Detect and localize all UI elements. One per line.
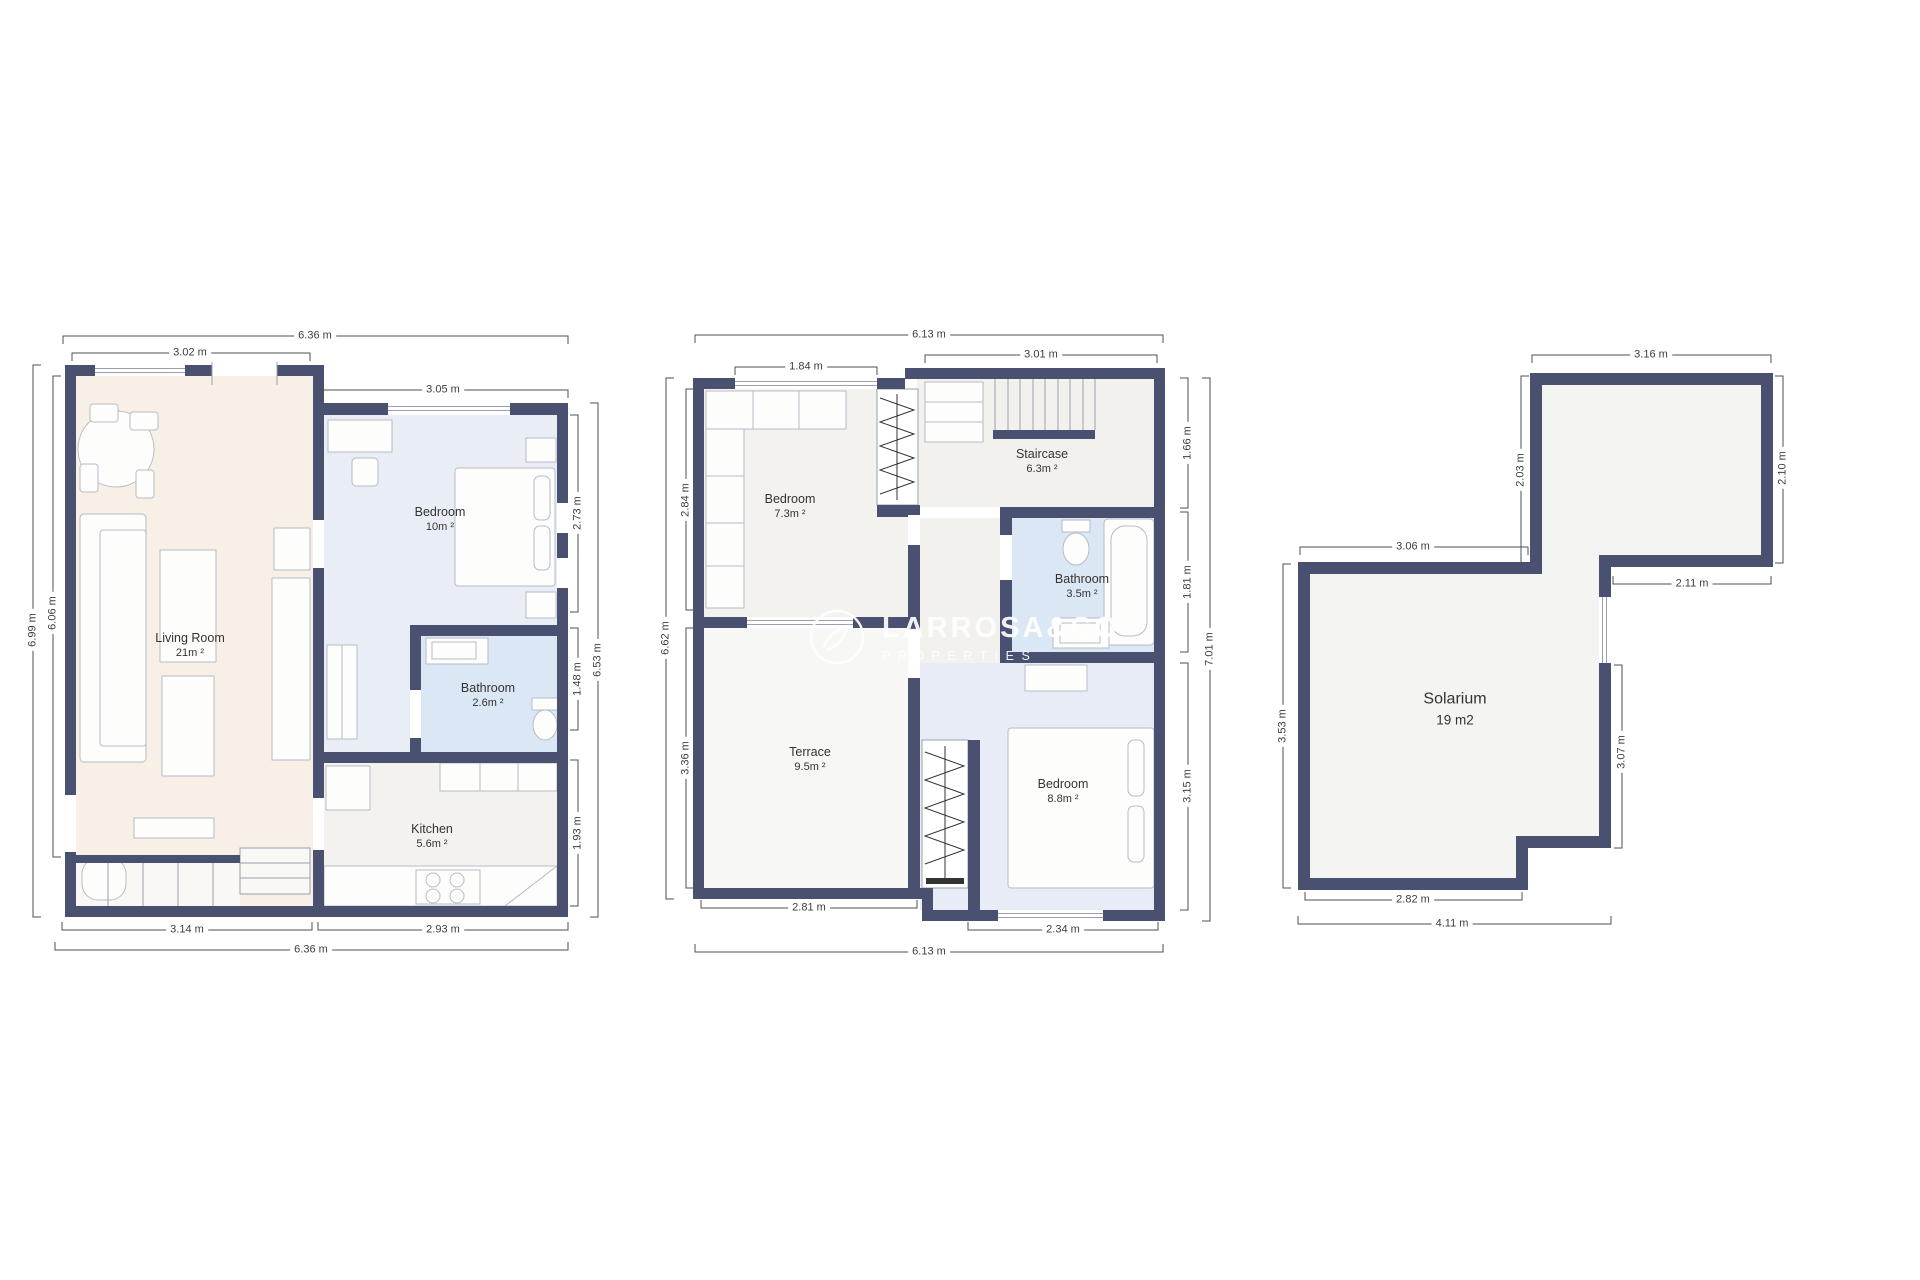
pillow [1128,806,1144,862]
p2-dim-top-outer: 6.13 m [908,329,950,342]
window [998,910,1103,921]
p3-dim-upper-right: 2.10 m [1777,447,1790,489]
p2-dim-left-outer: 6.62 m [660,617,673,659]
chair [80,464,98,492]
room-area: 10m ² [415,520,466,534]
window [735,378,877,389]
room-area: 6.3m ² [1016,462,1068,476]
room-name: Bathroom [461,680,515,696]
p2-dim-right-staircase: 1.66 m [1182,422,1195,464]
room-area: 9.5m ² [789,760,831,774]
toilet-tank [1062,520,1090,532]
room-area: 19 m2 [1423,711,1486,730]
p1-dim-left-outer: 6.99 m [27,609,40,651]
p1-dim-right-outer: 6.53 m [592,639,605,681]
p3-dim-inner-height: 3.07 m [1616,731,1629,773]
p2-dim-bottom-terrace: 2.81 m [788,902,830,915]
p3-dim-bottom-outer: 4.11 m [1432,918,1473,931]
p3-dim-left: 3.53 m [1277,705,1290,747]
window [388,403,510,415]
room-area: 5.6m ² [411,837,453,851]
toilet [1063,533,1089,565]
p1-dim-top-outer: 6.36 m [294,330,336,343]
watermark-tagline: PROPERTIES [882,649,1120,663]
p1-dim-left-living: 6.06 m [47,592,60,634]
room-label-bedroom-p1: Bedroom 10m ² [415,504,466,534]
room-area: 2.6m ² [461,696,515,710]
room-area: 3.5m ² [1055,587,1109,601]
p3-dim-main-top: 3.06 m [1392,541,1434,554]
room-area: 21m ² [155,646,224,660]
room-name: Bedroom [765,491,816,507]
fridge [326,766,370,810]
p2-dim-bottom-outer: 6.13 m [908,946,950,959]
p2-stair-hatch-bottom [922,740,968,888]
floorplan-canvas: 6.36 m 3.02 m 3.05 m 6.99 m 6.06 m 2.73 … [0,0,1920,1280]
rug [162,676,214,776]
window [557,503,568,533]
nightstand [526,438,556,462]
p3-dim-upper-left: 2.03 m [1515,449,1528,491]
p3-dim-top: 3.16 m [1630,349,1672,362]
toilet [533,710,557,740]
room-name: Living Room [155,630,224,646]
p3-window [1599,597,1611,663]
room-label-terrace: Terrace 9.5m ² [789,744,831,774]
wardrobe [706,429,744,608]
room-label-bathroom-p1: Bathroom 2.6m ² [461,680,515,710]
dresser [1025,665,1087,691]
room-name: Bathroom [1055,571,1109,587]
room-name: Solarium [1423,689,1486,711]
room-area: 8.8m ² [1038,792,1089,806]
p1-dim-right-kitchen: 1.93 m [572,812,585,854]
p2-dim-top-staircase: 3.01 m [1020,349,1062,362]
room-label-staircase: Staircase 6.3m ² [1016,446,1068,476]
pillow [1128,740,1144,796]
stove [416,870,480,904]
tv-cabinet [272,578,310,760]
room-label-kitchen: Kitchen 5.6m ² [411,821,453,851]
watermark-brand: LARROSA&CO [882,612,1120,645]
door-opening [1000,535,1012,580]
room-name: Kitchen [411,821,453,837]
p2-dim-left-terrace: 3.36 m [680,737,693,779]
p1-dim-bottom-outer: 6.36 m [290,944,332,957]
pillow [534,526,550,570]
desk-chair [352,458,378,486]
kitchen-cabinets [440,763,557,791]
room-label-living: Living Room 21m ² [155,630,224,660]
sofa-cushions [100,530,146,746]
p2-dim-top-bedroom: 1.84 m [785,361,827,374]
p1-dim-right-bedroom: 2.73 m [572,492,585,534]
p1-dim-bottom-living: 3.14 m [166,924,208,937]
toilet-tank [532,698,558,710]
armchair [82,858,126,900]
p2-dim-left-bedroom: 2.84 m [680,479,693,521]
p2-dim-right-outer: 7.01 m [1204,628,1217,670]
window [95,365,185,376]
chair [136,470,154,498]
p3-dim-inner-width: 2.11 m [1672,578,1713,591]
window [557,558,568,588]
room-label-bedroom2-p2: Bedroom 8.8m ² [1038,776,1089,806]
p3-dim-bottom-inner: 2.82 m [1392,894,1434,907]
room-label-bathroom-p2: Bathroom 3.5m ² [1055,571,1109,601]
room-name: Bedroom [1038,776,1089,792]
p2-dim-bottom-bedroom: 2.34 m [1042,924,1084,937]
brand-logo-icon [806,606,868,668]
pillow [534,476,550,520]
p1-dim-top-living: 3.02 m [169,347,211,360]
p2-dim-right-bedroom: 3.15 m [1182,765,1195,807]
nightstand [526,592,556,618]
chair [90,404,118,422]
door-opening [212,365,277,376]
room-name: Terrace [789,744,831,760]
room-label-bedroom1-p2: Bedroom 7.3m ² [765,491,816,521]
door-opening [313,520,324,568]
room-label-solarium: Solarium 19 m2 [1423,689,1486,730]
chair [130,412,158,430]
watermark-text: LARROSA&CO PROPERTIES [882,612,1120,663]
watermark: LARROSA&CO PROPERTIES [806,606,1120,668]
door-opening [908,515,920,545]
desk [328,420,392,452]
solarium-plan [1298,373,1773,890]
p1-dim-top-bedroom: 3.05 m [422,384,464,397]
cabinet [274,528,310,570]
door-opening [313,798,324,850]
door-opening [410,690,421,738]
shelves [925,382,983,442]
room-area: 7.3m ² [765,507,816,521]
p2-stair-hatch-top [877,389,918,505]
wardrobe [706,391,846,429]
p1-dim-bottom-kitchen: 2.93 m [422,924,464,937]
p1-dim-right-bathroom: 1.48 m [572,658,585,700]
room-name: Staircase [1016,446,1068,462]
p2-dim-right-bathroom: 1.81 m [1182,561,1195,603]
door-opening [65,795,76,852]
room-name: Bedroom [415,504,466,520]
sideboard [134,818,214,838]
ground-floor-plan [65,362,568,917]
